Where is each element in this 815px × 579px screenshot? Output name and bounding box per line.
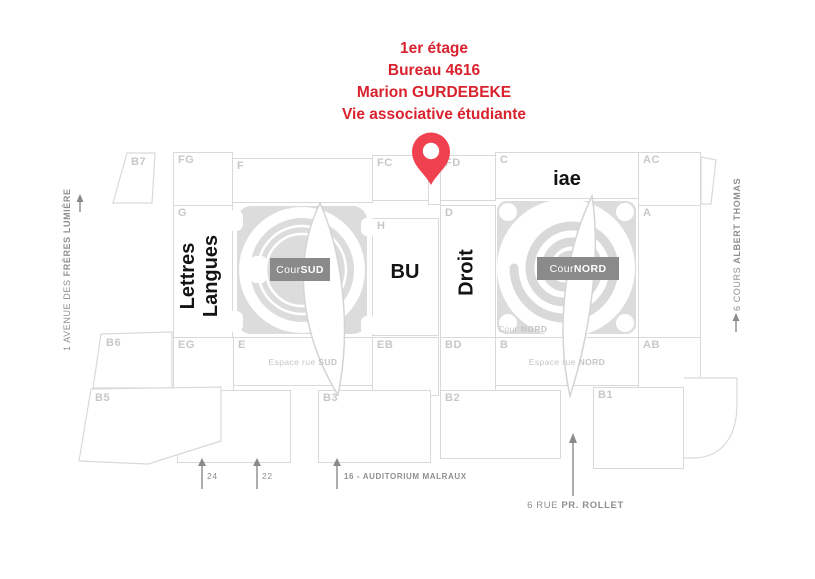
block-h-label: H [377,221,385,232]
block-e-label: E [238,340,246,351]
block-b6-label: B6 [106,338,121,349]
block-eg-label: EG [178,340,195,351]
block-b4-label: B4 [182,393,197,404]
street-left-prefix: 1 AVENUE DES [62,276,72,351]
block-b4: B4 [177,390,291,463]
block-b3: B3 [318,390,431,463]
title-office: Bureau 4616 [254,60,614,82]
street-right-bold: ALBERT THOMAS [732,178,742,264]
espace-nord-prefix: Espace rue [529,357,579,367]
entrance-22-label: 22 [262,471,273,481]
espace-sud-bold: SUD [318,357,337,367]
block-f-label: F [237,161,244,172]
entrance-24-label: 24 [207,471,218,481]
building-iae: iae [495,168,639,191]
street-cours-albert-thomas: 6 COURS ALBERT THOMAS [732,181,742,311]
block-ab-label: AB [643,340,660,351]
block-ac-label: AC [643,155,660,166]
title-service: Vie associative étudiante [254,104,614,126]
block-c-label: C [500,155,508,166]
block-b-label: B [500,340,508,351]
street-avenue-freres-lumiere: 1 AVENUE DES FRÈRES LUMIÈRE [62,201,72,351]
block-d-label: D [445,208,453,219]
street-left-bold: FRÈRES LUMIÈRE [62,188,72,276]
block-fd: FD [440,155,496,201]
building-bu: BU [372,261,438,284]
cour-nord-small-bold: NORD [521,324,548,334]
block-b5-label: B5 [95,393,110,404]
cour-sud-bold: SUD [300,264,323,276]
cour-nord-badge: Cour NORD [537,257,619,280]
street-bottom-bold: PR. ROLLET [561,500,623,511]
campus-map-page: 1er étage Bureau 4616 Marion GURDEBEKE V… [0,0,815,579]
block-f: F [232,158,373,203]
cour-nord-small-label: Cour NORD [498,324,547,334]
cour-nord-small-prefix: Cour [498,324,521,334]
street-right-prefix: 6 COURS [732,264,742,311]
espace-nord-bold: NORD [579,357,606,367]
arrow-up-icon-rollet [569,433,577,496]
block-b7-label: B7 [131,157,146,168]
cour-nord-prefix: Cour [550,263,574,275]
street-bottom-prefix: 6 RUE [527,500,561,511]
block-bd: BD [440,337,496,391]
block-b3-label: B3 [323,393,338,404]
block-bd-label: BD [445,340,462,351]
entrance-16-auditorium-label: 16 - AUDITORIUM MALRAUX [344,472,467,481]
block-fc-label: FC [377,158,393,169]
espace-rue-sud-label: Espace rue SUD [233,357,373,367]
block-b2-label: B2 [445,393,460,404]
block-eb-label: EB [377,340,393,351]
title-person: Marion GURDEBEKE [254,82,614,104]
block-ab: AB [638,337,701,391]
block-b1: B1 [593,387,684,469]
building-lettres-label: Lettres [177,221,200,331]
block-eb: EB [372,337,439,396]
street-rue-pr-rollet: 6 RUE PR. ROLLET [518,500,633,511]
arrow-up-icon-cours [733,313,740,332]
building-langues-label: Langues [200,221,223,331]
cour-sud-prefix: Cour [276,264,300,276]
block-a-label: A [643,208,651,219]
cour-sud-badge: Cour SUD [270,258,330,281]
block-b1-label: B1 [598,390,613,401]
block-fd-label: FD [445,158,461,169]
cour-nord-bold: NORD [574,263,607,275]
block-g-label: G [178,208,187,219]
title-floor: 1er étage [254,38,614,60]
page-title: 1er étage Bureau 4616 Marion GURDEBEKE V… [254,38,614,126]
building-droit: Droit [456,228,479,318]
block-eg: EG [173,337,234,396]
block-fg: FG [173,152,233,206]
block-ac: AC [638,152,701,206]
espace-sud-prefix: Espace rue [269,357,319,367]
block-fg-label: FG [178,155,194,166]
block-b2: B2 [440,390,561,459]
arrow-up-icon-avenue [77,194,84,212]
block-fc: FC [372,155,429,201]
block-a: A [638,205,701,341]
building-lettres-langues: Lettres Langues [177,221,223,331]
espace-rue-nord-label: Espace rue NORD [495,357,639,367]
